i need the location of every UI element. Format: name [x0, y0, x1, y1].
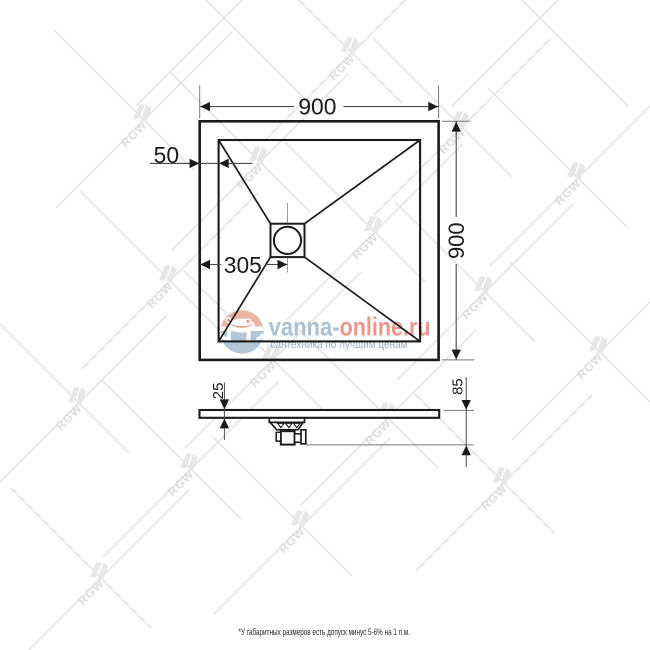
svg-text:*У габаритных размеров есть до: *У габаритных размеров есть допуск минус… — [239, 627, 411, 637]
svg-text:305: 305 — [224, 252, 262, 278]
svg-text:900: 900 — [298, 93, 336, 119]
svg-text:85: 85 — [450, 378, 466, 394]
svg-text:25: 25 — [210, 382, 227, 399]
svg-text:50: 50 — [154, 142, 179, 168]
svg-text:vanna-: vanna- — [269, 312, 340, 342]
svg-text:900: 900 — [444, 222, 469, 259]
